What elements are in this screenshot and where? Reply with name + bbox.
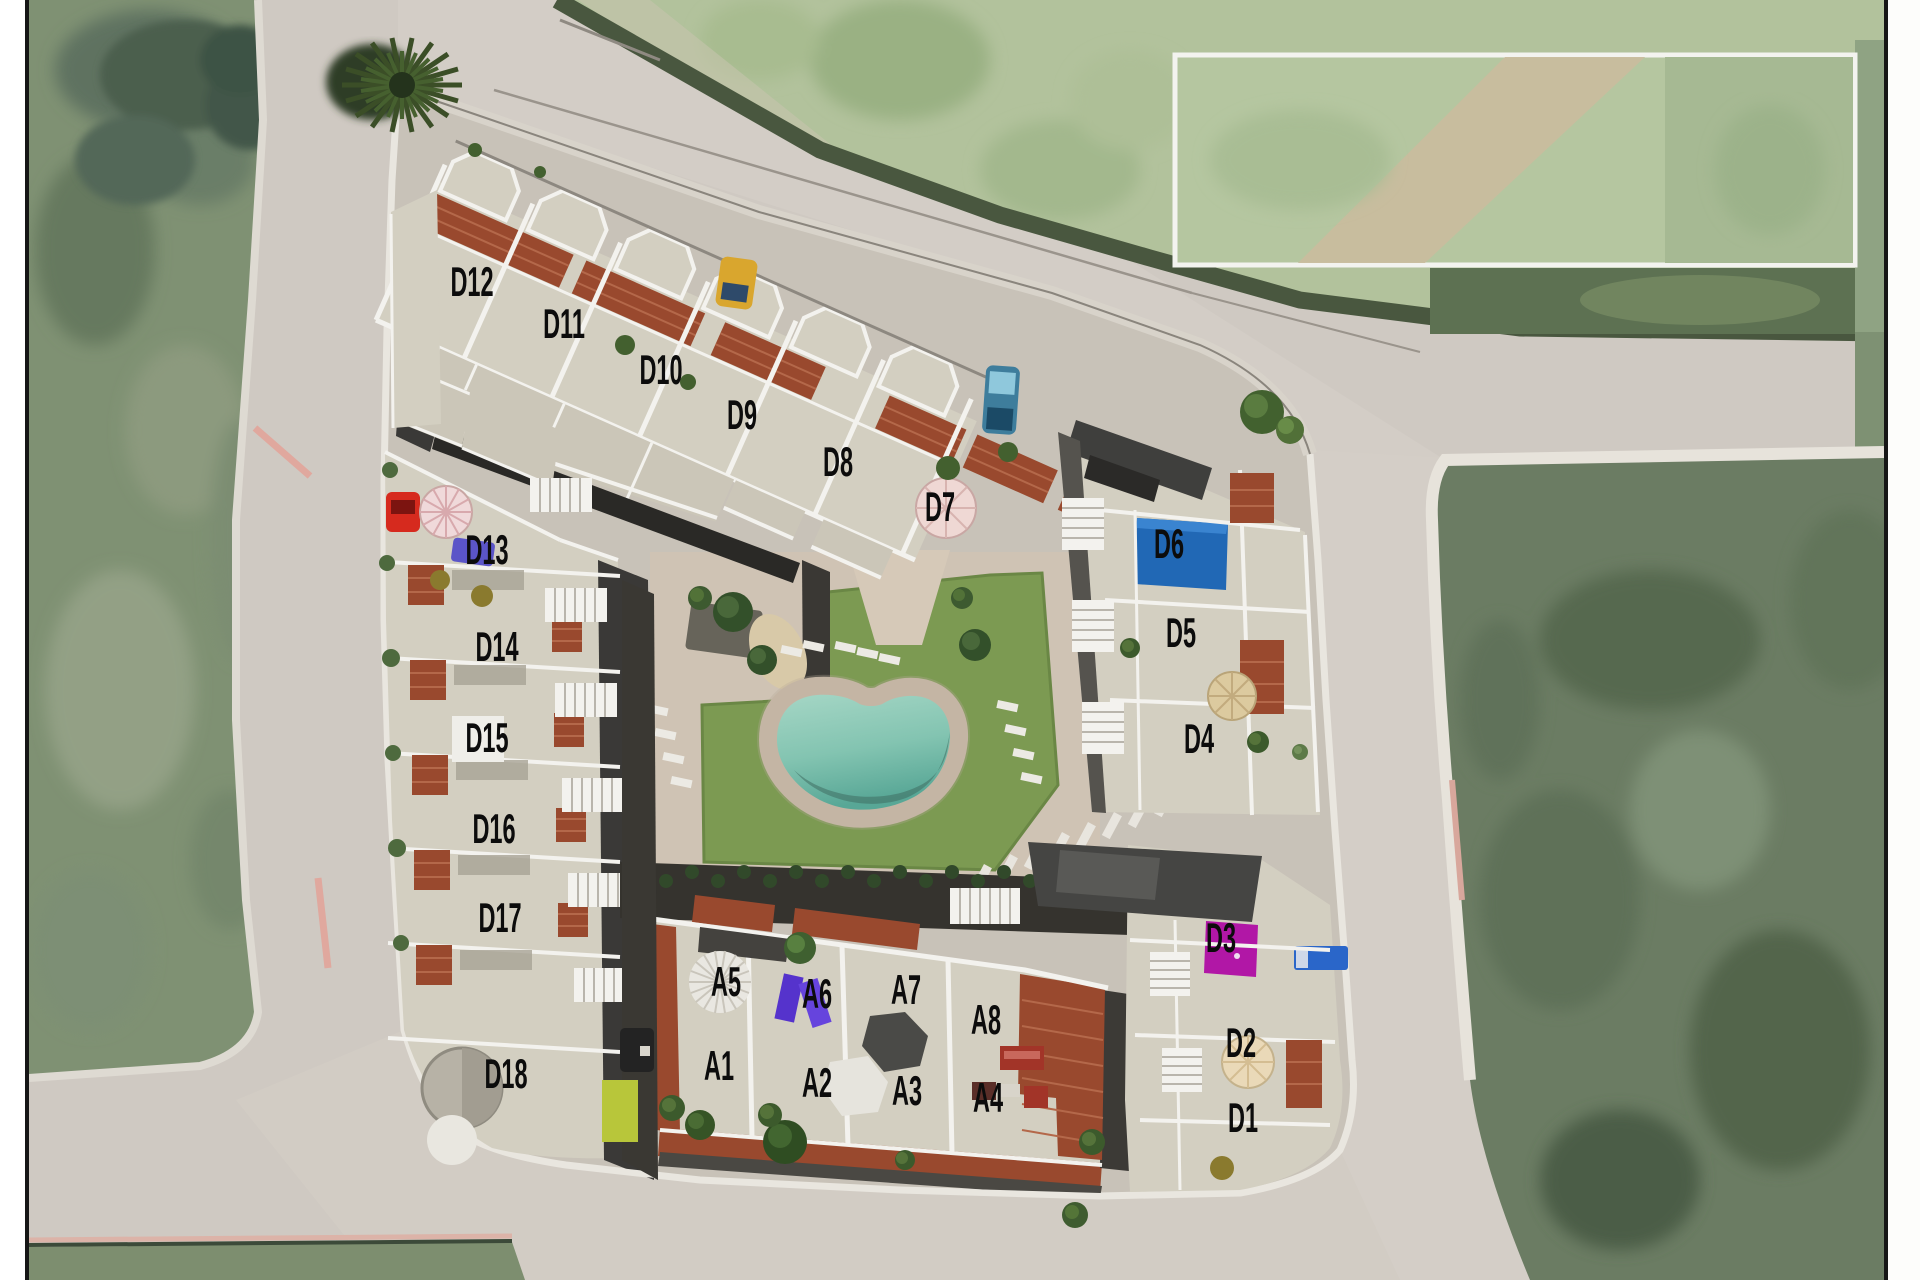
- svg-text:D12: D12: [450, 259, 493, 306]
- svg-text:A7: A7: [891, 967, 921, 1014]
- svg-text:D5: D5: [1166, 610, 1196, 657]
- svg-text:D10: D10: [639, 347, 682, 394]
- svg-text:D17: D17: [478, 895, 521, 942]
- svg-text:A4: A4: [973, 1075, 1003, 1122]
- svg-text:A2: A2: [802, 1060, 832, 1107]
- svg-text:D7: D7: [925, 484, 955, 531]
- svg-text:A8: A8: [971, 997, 1001, 1044]
- svg-text:D1: D1: [1228, 1095, 1258, 1142]
- svg-text:D13: D13: [465, 527, 508, 574]
- svg-text:D6: D6: [1154, 521, 1184, 568]
- svg-text:D4: D4: [1184, 716, 1214, 763]
- svg-text:A5: A5: [711, 959, 741, 1006]
- svg-text:A1: A1: [704, 1043, 734, 1090]
- svg-text:A6: A6: [802, 971, 832, 1018]
- svg-text:D11: D11: [543, 301, 585, 348]
- svg-text:D14: D14: [475, 624, 518, 671]
- svg-text:A3: A3: [892, 1068, 922, 1115]
- svg-text:D18: D18: [484, 1051, 527, 1098]
- svg-text:D2: D2: [1226, 1020, 1256, 1067]
- svg-text:D16: D16: [472, 806, 515, 853]
- svg-text:D15: D15: [465, 715, 508, 762]
- svg-text:D8: D8: [823, 439, 853, 486]
- svg-text:D9: D9: [727, 392, 757, 439]
- svg-text:D3: D3: [1206, 915, 1236, 962]
